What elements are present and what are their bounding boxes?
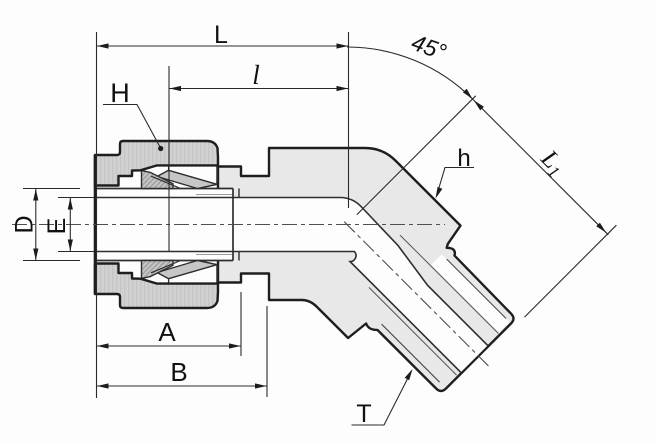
svg-text:A: A: [158, 317, 176, 347]
svg-text:l: l: [252, 60, 260, 90]
svg-text:H: H: [110, 78, 130, 108]
svg-text:T: T: [356, 400, 371, 428]
svg-text:D: D: [11, 215, 39, 233]
svg-text:L: L: [214, 21, 228, 49]
svg-text:B: B: [170, 357, 187, 387]
svg-text:E: E: [43, 218, 71, 235]
